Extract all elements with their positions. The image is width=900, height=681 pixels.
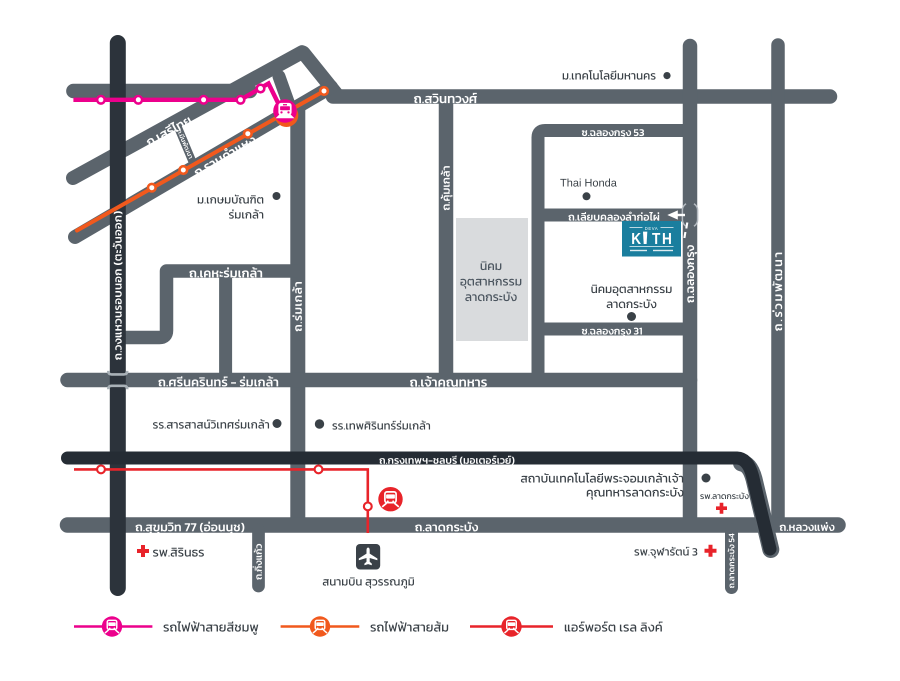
svg-text:DEVA: DEVA [645, 226, 659, 231]
svg-text:K: K [631, 231, 641, 248]
svg-text:H: H [662, 231, 672, 248]
svg-text:T: T [652, 231, 660, 248]
